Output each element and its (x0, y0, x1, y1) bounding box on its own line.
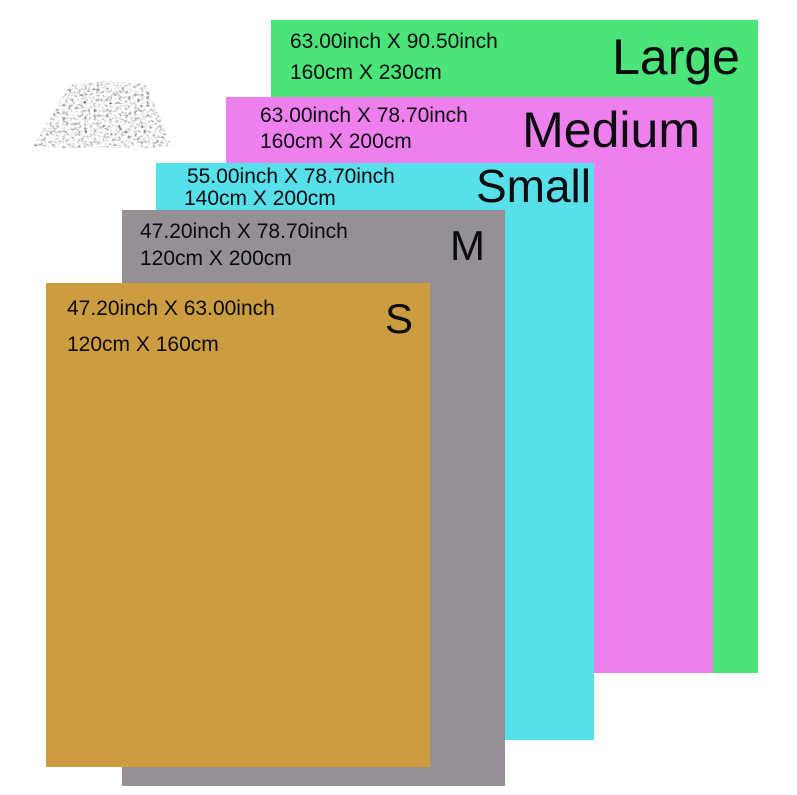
size-chart: 63.00inch X 90.50inch 160cm X 230cm Larg… (0, 0, 797, 795)
size-label-s: S (385, 298, 413, 340)
tarp-photo-icon (25, 73, 180, 158)
size-label-medium: Medium (522, 105, 700, 155)
dimension-inches-small: 55.00inch X 78.70inch (187, 165, 395, 188)
size-label-small: Small (476, 163, 591, 209)
size-rect-s: 47.20inch X 63.00inch 120cm X 160cm S (46, 283, 430, 767)
size-label-large: Large (612, 32, 740, 82)
dimension-cm-medium: 160cm X 200cm (260, 130, 412, 153)
dimension-cm-s: 120cm X 160cm (67, 333, 219, 356)
dimension-inches-s: 47.20inch X 63.00inch (67, 297, 275, 320)
size-label-m: M (450, 225, 485, 267)
dimension-cm-large: 160cm X 230cm (290, 61, 442, 84)
dimension-inches-large: 63.00inch X 90.50inch (290, 30, 498, 53)
dimension-cm-small: 140cm X 200cm (184, 187, 336, 210)
dimension-inches-medium: 63.00inch X 78.70inch (260, 104, 468, 127)
dimension-inches-m: 47.20inch X 78.70inch (140, 220, 348, 243)
dimension-cm-m: 120cm X 200cm (140, 247, 292, 270)
